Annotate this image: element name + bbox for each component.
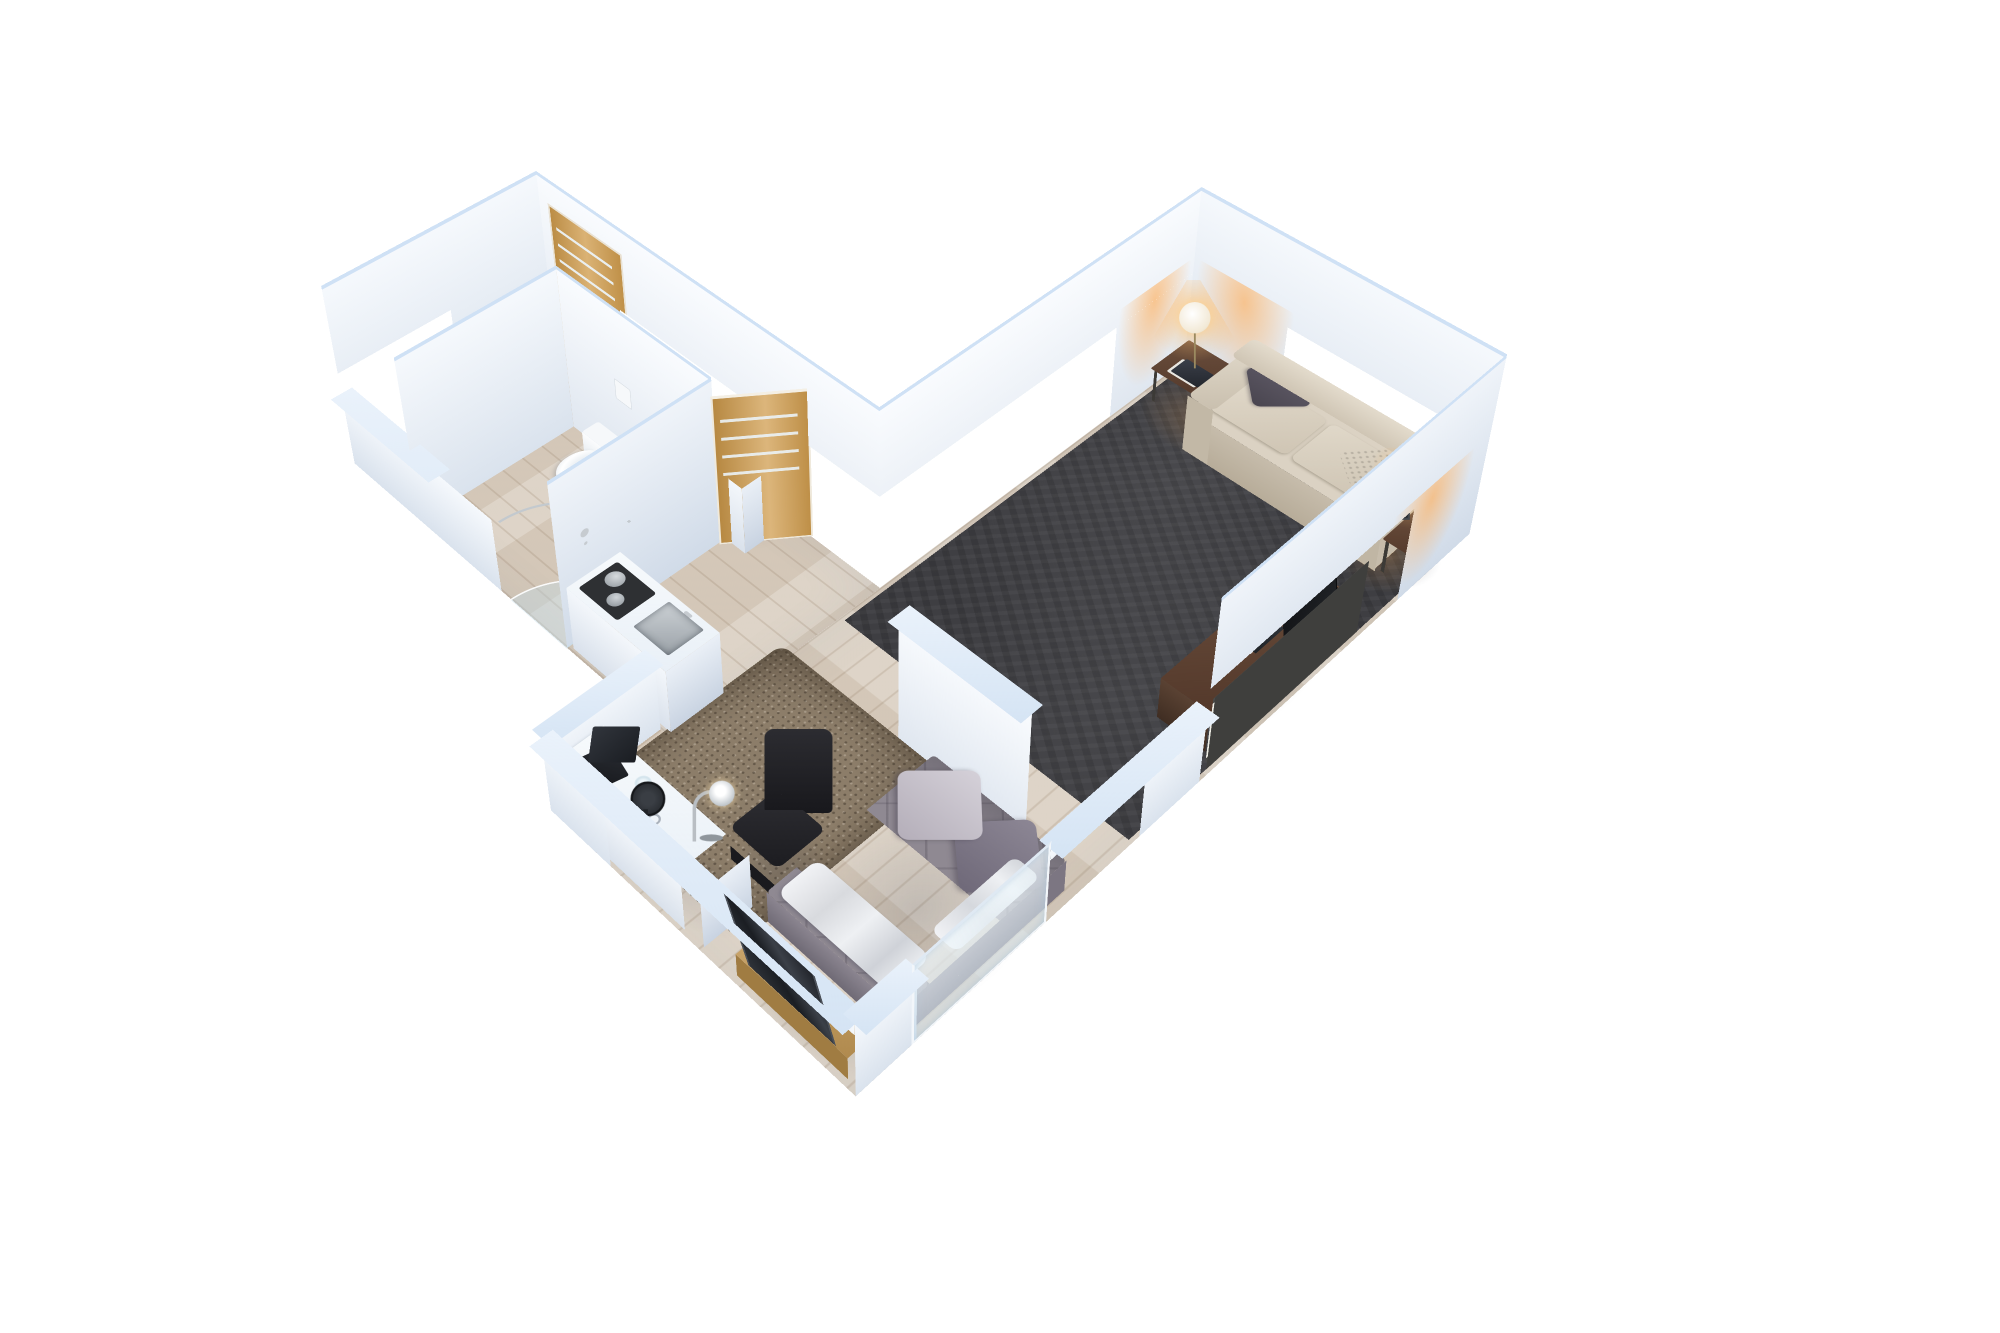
flush-plate	[614, 378, 632, 410]
pot-1	[600, 568, 630, 590]
laptop-screen-panel	[588, 726, 641, 762]
render-scene	[0, 0, 2000, 1333]
bed-pillow-light	[898, 771, 983, 840]
bathroom-door-stripes	[720, 413, 799, 481]
shower-head	[580, 526, 589, 539]
globe-lamp-1-sphere	[1179, 302, 1210, 333]
globe-lamp-1-stem	[1194, 333, 1196, 368]
chair-backrest-panel	[764, 729, 832, 813]
floor-plan-render	[0, 0, 2000, 1333]
faucet	[683, 610, 693, 618]
desk-lamp-head	[709, 781, 735, 807]
desk-lamp-base	[700, 834, 723, 841]
lamp-wall-glow-right	[1372, 444, 1479, 623]
